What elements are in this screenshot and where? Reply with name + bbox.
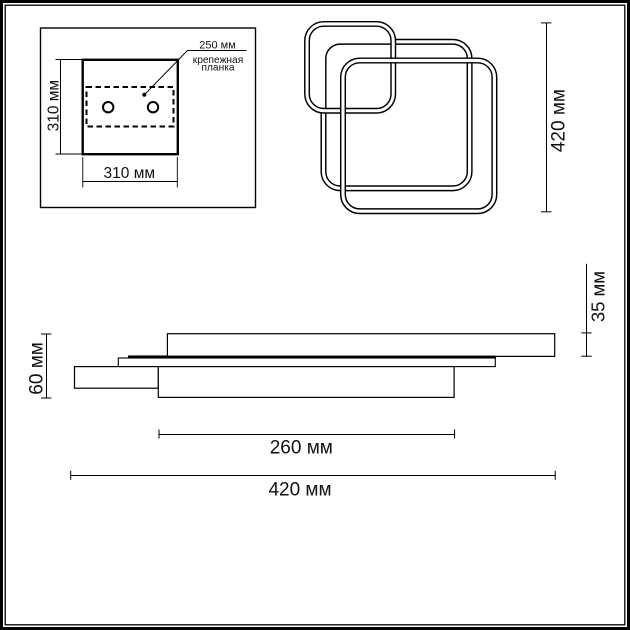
svg-text:310 мм: 310 мм bbox=[45, 80, 62, 131]
svg-text:планка: планка bbox=[201, 63, 234, 74]
svg-text:260 мм: 260 мм bbox=[270, 437, 333, 458]
svg-text:250 мм: 250 мм bbox=[199, 40, 236, 52]
svg-text:420 мм: 420 мм bbox=[268, 479, 331, 500]
svg-text:60 мм: 60 мм bbox=[27, 342, 48, 395]
svg-text:310 мм: 310 мм bbox=[104, 165, 155, 182]
svg-text:420 мм: 420 мм bbox=[548, 89, 569, 152]
svg-text:35 мм: 35 мм bbox=[587, 271, 608, 322]
